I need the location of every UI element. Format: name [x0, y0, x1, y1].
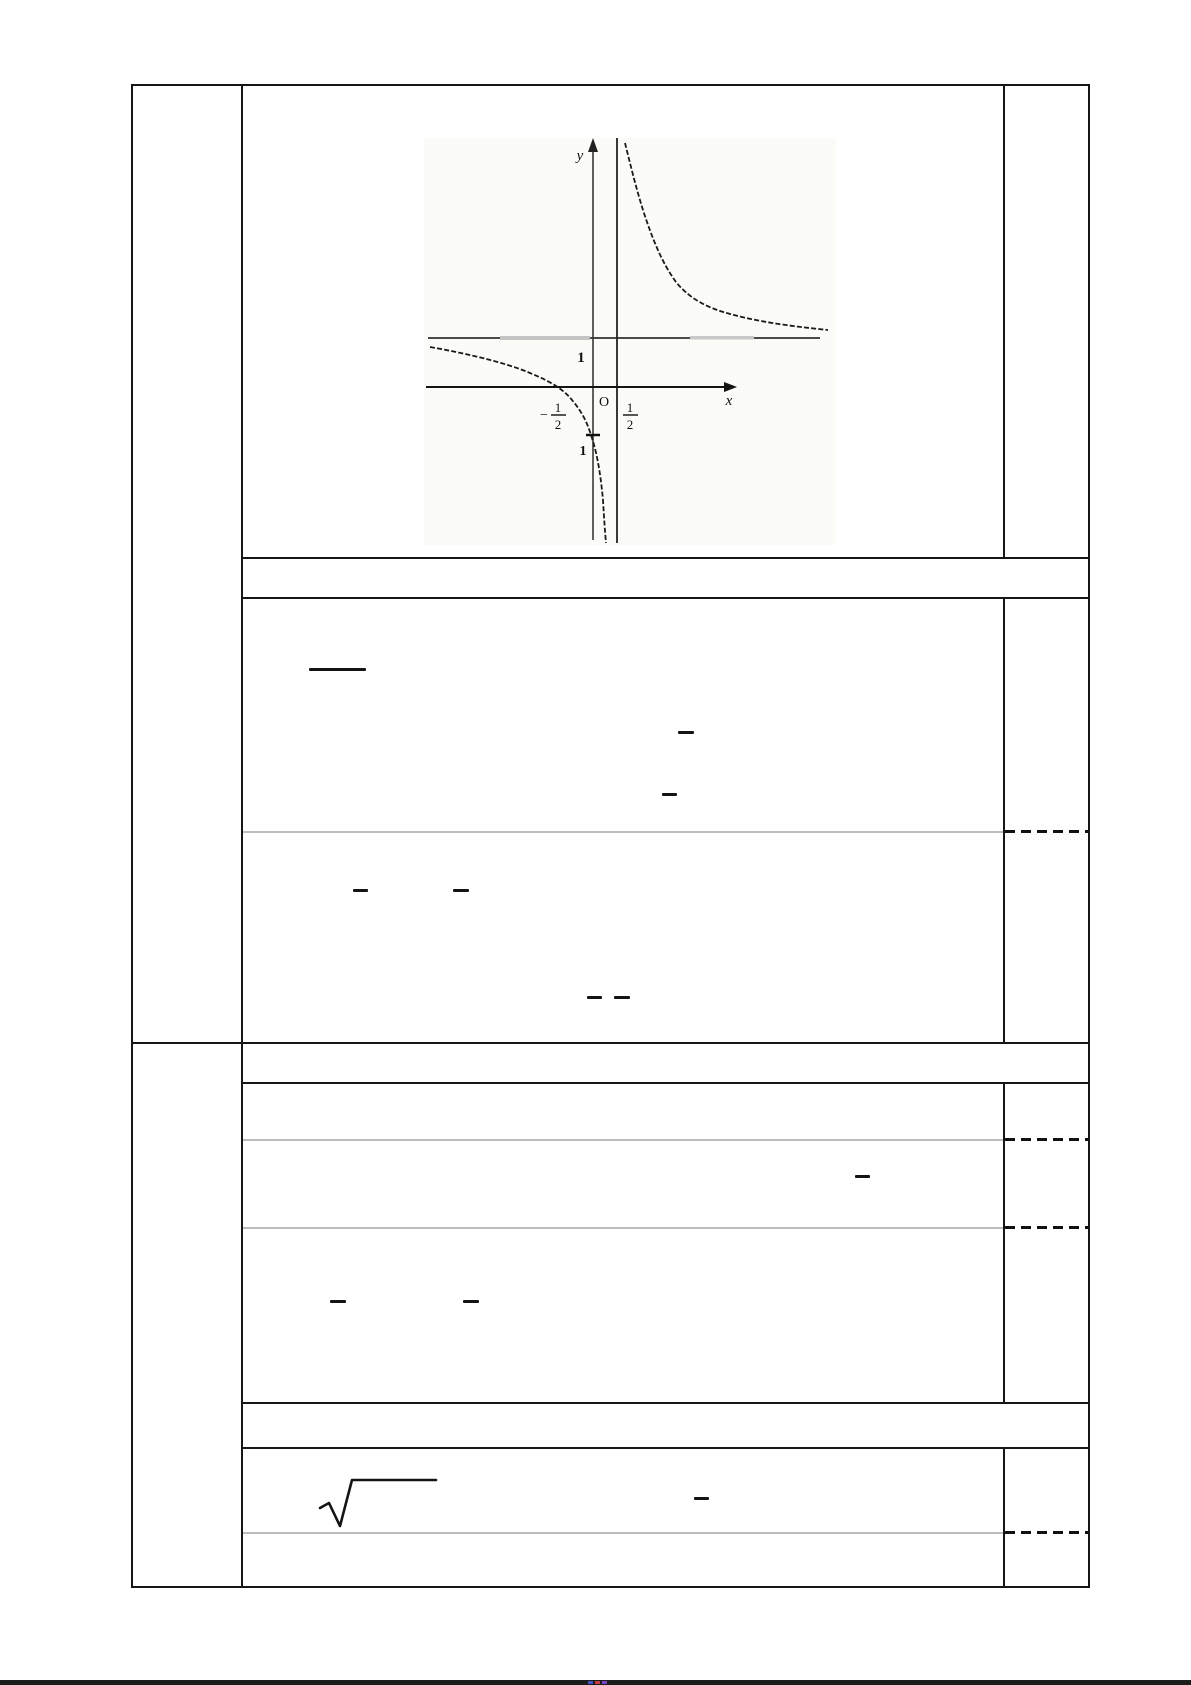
gray-divider-3	[243, 1227, 1003, 1229]
table-border-left	[131, 84, 133, 1588]
minus-mark-3a	[353, 889, 368, 892]
minus-mark-5	[855, 1175, 870, 1178]
row-line-mid-bottom	[241, 1402, 1090, 1404]
scanned-worksheet-page: y x O 1 − 1 2 1 2 1	[0, 0, 1191, 1685]
minus-mark-4b	[614, 996, 630, 999]
figure-background	[424, 138, 836, 545]
gray-divider-1	[243, 831, 1003, 833]
neg-half-minus-sign: −	[540, 408, 548, 423]
column-divider-right-seg2	[1003, 597, 1005, 1042]
asymptote-scan-smear-2	[690, 336, 754, 340]
dashed-divider-3	[1005, 1226, 1088, 1229]
footer-speck-red	[595, 1681, 600, 1684]
radical-sign-mark	[315, 1470, 445, 1535]
column-divider-right-seg1	[1003, 84, 1005, 557]
dashed-divider-1	[1005, 830, 1088, 833]
minus-mark-4a	[587, 996, 602, 999]
table-border-top	[131, 84, 1090, 86]
row-line-thin3-bottom	[241, 1447, 1090, 1449]
h-asymptote-value-label: 1	[577, 350, 585, 366]
table-border-bottom	[131, 1586, 1090, 1588]
table-border-right	[1088, 84, 1090, 1588]
minus-mark-6b	[463, 1300, 479, 1303]
origin-label: O	[599, 395, 609, 410]
column-divider-right-seg4	[1003, 1447, 1005, 1586]
row-line-thin1-bottom	[241, 597, 1090, 599]
hyperbola-graph-figure: y x O 1 − 1 2 1 2 1	[424, 138, 836, 545]
neg-half-numerator: 1	[555, 400, 562, 415]
y-axis-label: y	[575, 148, 584, 164]
minus-mark-7	[694, 1497, 709, 1500]
minus-mark-1	[678, 731, 694, 734]
column-divider-left	[241, 84, 243, 1588]
column-divider-right-seg3	[1003, 1082, 1005, 1402]
dashed-divider-2	[1005, 1138, 1088, 1141]
pos-half-numerator: 1	[627, 400, 634, 415]
row-line-thin2-bottom	[241, 1082, 1090, 1084]
dashed-divider-4	[1005, 1531, 1088, 1534]
footer-speck-purple	[602, 1681, 607, 1684]
pos-half-denominator: 2	[627, 417, 634, 432]
x-axis-label: x	[725, 393, 733, 409]
y-intercept-label: 1	[580, 444, 587, 459]
minus-mark-6a	[330, 1300, 346, 1303]
row-line-section1-bottom	[131, 1042, 1090, 1044]
asymptote-scan-smear-1	[500, 336, 590, 340]
footer-speck-blue	[588, 1681, 593, 1684]
fraction-bar-mark-1	[309, 668, 366, 671]
row-line-graph-bottom	[241, 557, 1090, 559]
minus-mark-3b	[453, 889, 469, 892]
gray-divider-2	[243, 1139, 1003, 1141]
minus-mark-2	[662, 793, 677, 796]
neg-half-denominator: 2	[555, 417, 562, 432]
